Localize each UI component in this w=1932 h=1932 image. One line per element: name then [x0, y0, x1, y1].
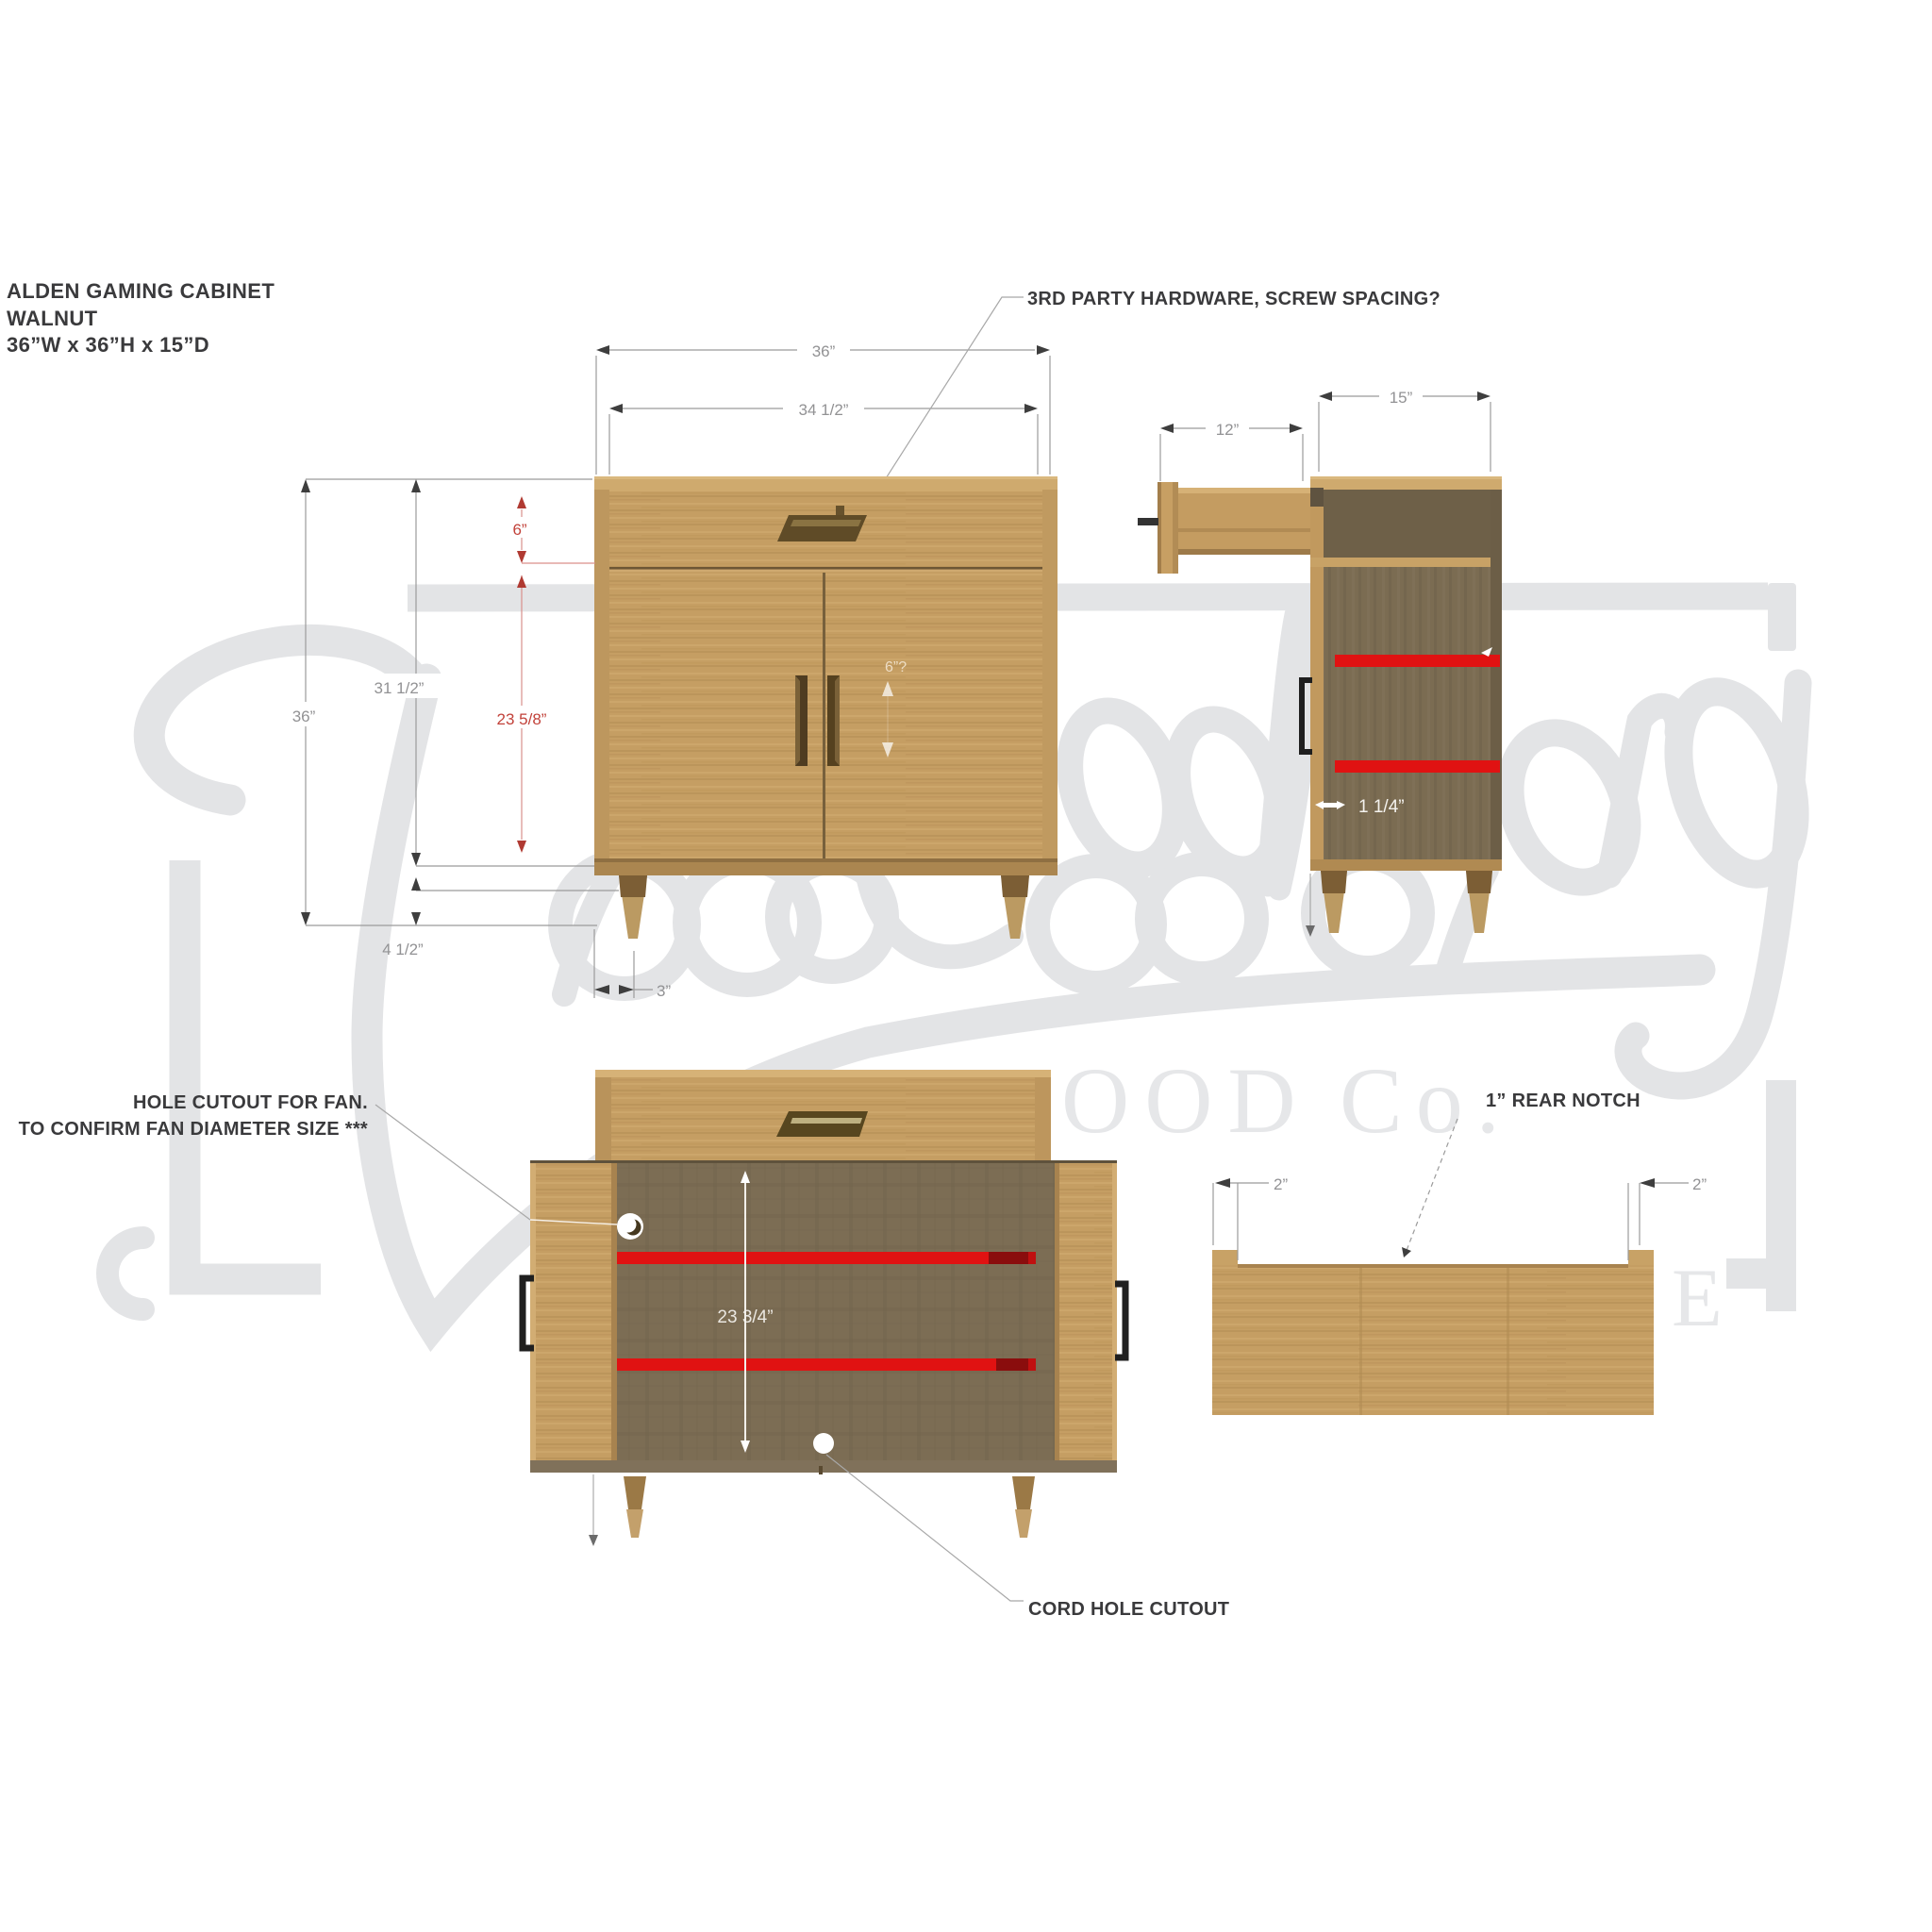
svg-text:36”W x 36”H x 15”D: 36”W x 36”H x 15”D [7, 333, 209, 357]
svg-text:WALNUT: WALNUT [7, 307, 98, 330]
svg-text:1” REAR NOTCH: 1” REAR NOTCH [1486, 1091, 1641, 1111]
svg-text:23 3/4”: 23 3/4” [717, 1307, 773, 1327]
svg-text:HOLE CUTOUT FOR FAN.: HOLE CUTOUT FOR FAN. [133, 1092, 368, 1113]
svg-text:3RD PARTY HARDWARE, SCREW SPAC: 3RD PARTY HARDWARE, SCREW SPACING? [1027, 289, 1441, 309]
svg-text:2”: 2” [1274, 1175, 1288, 1193]
svg-text:OOD: OOD [1061, 1048, 1311, 1153]
svg-text:3”: 3” [657, 982, 671, 1000]
svg-text:15”: 15” [1390, 389, 1413, 407]
svg-text:CORD HOLE CUTOUT: CORD HOLE CUTOUT [1028, 1599, 1229, 1620]
svg-text:E: E [1672, 1253, 1723, 1344]
svg-text:1 1/4”: 1 1/4” [1358, 797, 1405, 817]
svg-text:ALDEN GAMING CABINET: ALDEN GAMING CABINET [7, 279, 275, 303]
svg-text:6”: 6” [512, 521, 526, 539]
svg-text:36”: 36” [292, 708, 316, 725]
svg-text:TO CONFIRM FAN DIAMETER SIZE *: TO CONFIRM FAN DIAMETER SIZE *** [19, 1119, 368, 1140]
svg-text:34 1/2”: 34 1/2” [799, 401, 849, 419]
svg-text:2”: 2” [1692, 1175, 1707, 1193]
svg-text:12”: 12” [1216, 421, 1240, 439]
svg-text:36”: 36” [812, 342, 836, 360]
svg-text:6”?: 6”? [885, 659, 907, 675]
svg-text:31 1/2”: 31 1/2” [375, 679, 425, 697]
svg-text:23 5/8”: 23 5/8” [497, 710, 547, 728]
svg-text:4 1/2”: 4 1/2” [382, 941, 424, 958]
